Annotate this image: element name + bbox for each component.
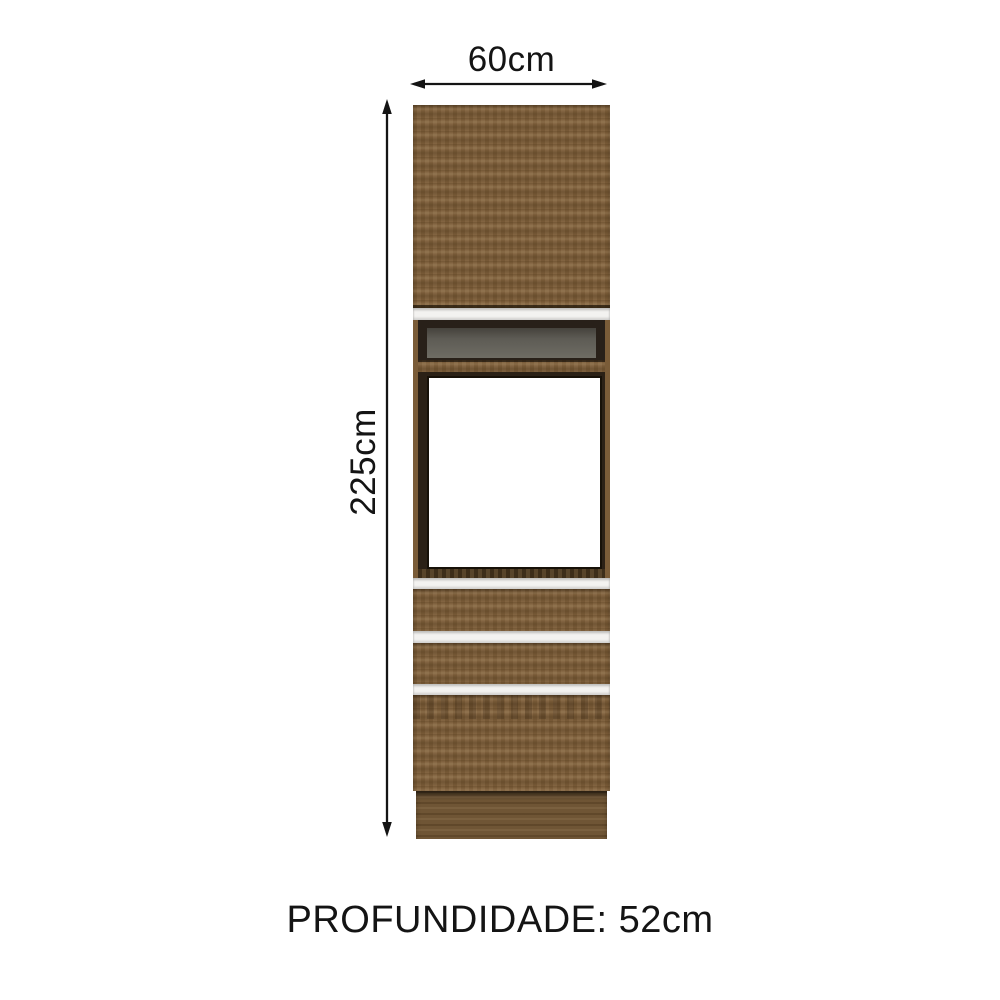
width-double-arrow-icon	[410, 76, 607, 92]
oven-tower-cabinet	[413, 105, 610, 839]
upper-door	[413, 105, 610, 308]
divider-strip	[413, 684, 610, 695]
oven-cavity-sill	[418, 569, 605, 578]
divider-strip	[413, 308, 610, 320]
height-double-arrow-icon	[379, 99, 395, 837]
divider-strip	[413, 631, 610, 643]
product-dimension-diagram: 60cm 225cm PROFUNDIDADE: 52cm	[0, 0, 1000, 1000]
height-dimension-label: 225cm	[344, 402, 384, 522]
niche-shelf	[418, 360, 605, 372]
drawer-3	[413, 695, 610, 791]
open-niche	[413, 320, 610, 372]
depth-dimension-label: PROFUNDIDADE: 52cm	[286, 899, 713, 942]
oven-cavity-frame	[413, 372, 610, 578]
niche-back-panel	[427, 328, 596, 358]
width-dimension-label: 60cm	[413, 40, 610, 80]
drawer-1	[413, 589, 610, 631]
divider-strip	[413, 578, 610, 589]
drawer-2	[413, 643, 610, 684]
oven-cavity-opening	[429, 378, 600, 567]
plinth-base	[416, 791, 607, 839]
